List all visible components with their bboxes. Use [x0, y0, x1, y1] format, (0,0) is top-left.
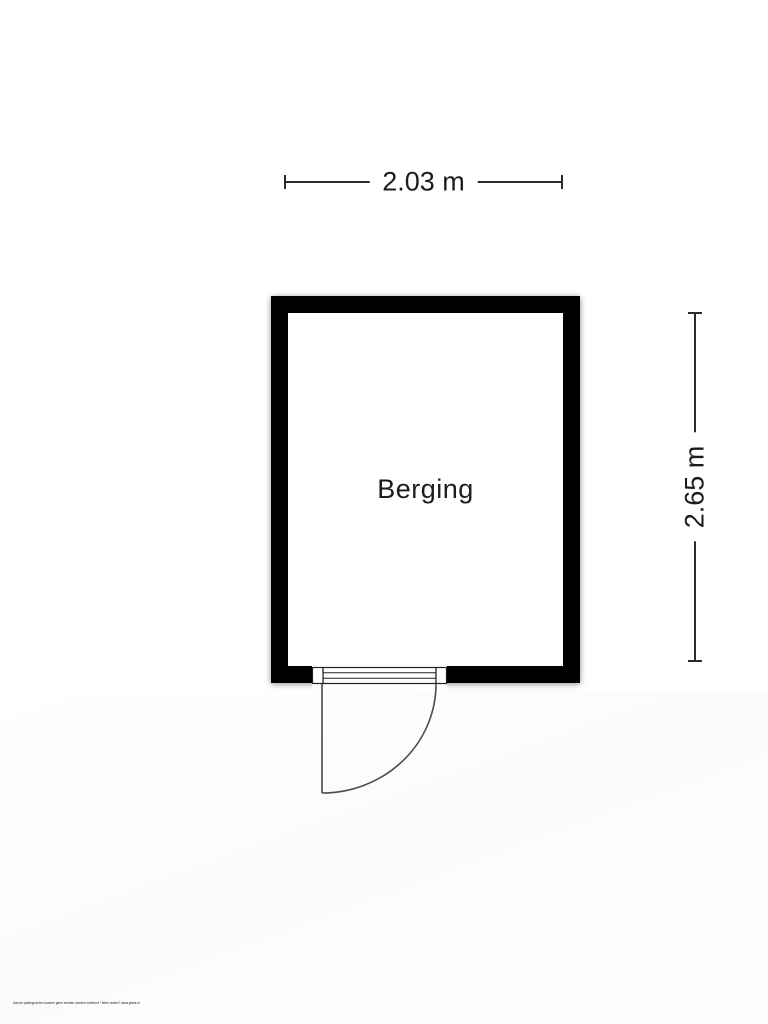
dimension-width: 2.03 m [284, 175, 563, 189]
dimension-width-label: 2.03 m [369, 165, 478, 200]
background-shading [0, 690, 768, 1024]
dimension-height: 2.65 m [688, 312, 702, 662]
dimension-width-tick-left [284, 175, 286, 189]
room-berging: Berging [271, 296, 580, 683]
footer-disclaimer: Aan de plattegronden kunnen geen rechten… [13, 1001, 140, 1005]
dimension-width-tick-right [561, 175, 563, 189]
room-name-label: Berging [377, 474, 474, 505]
dimension-height-label: 2.65 m [678, 433, 713, 542]
door-swing-arc [322, 684, 436, 793]
dimension-height-tick-top [688, 312, 702, 314]
dimension-height-tick-bottom [688, 660, 702, 662]
floor-plan-canvas: 2.03 m 2.65 m Berging Aan de plattegrond… [0, 0, 768, 1024]
